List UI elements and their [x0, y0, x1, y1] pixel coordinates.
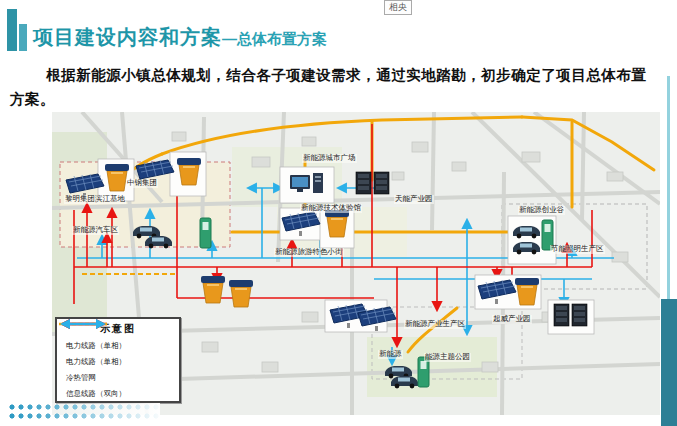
title-accent-bar-2 [19, 24, 27, 51]
map-label-industry-zone: 新能源产业生产区 [404, 320, 466, 329]
legend-item-heat-pipe: 冷热管网 [61, 370, 175, 386]
server-icon [374, 172, 389, 194]
charging-pillar-icon [200, 218, 211, 248]
legend-label: 电力线路（单相） [66, 357, 126, 367]
map-label-tourism-street: 新能源旅游特色小街 [274, 248, 344, 257]
legend-item-info-double: 信息线路（双向） [61, 386, 175, 402]
map-label-new-energy: 新能源 [378, 350, 403, 359]
legend-label: 冷热管网 [66, 373, 96, 383]
map-label-theme-park: 能源主题公园 [424, 353, 471, 362]
map-label-chaowei-park: 超威产业园 [492, 315, 532, 324]
page-title-sub: —总体布置方案 [222, 30, 327, 49]
title-accent-bar-1 [7, 9, 17, 51]
map-legend: 示意图 电力线路（单相） 电力线路（单相） 冷热管网 [55, 317, 181, 403]
legend-item-power-single: 电力线路（单相） [61, 338, 175, 354]
server-icon [356, 172, 371, 194]
server-icon [554, 304, 569, 326]
legend-label: 电力线路（单相） [66, 341, 126, 351]
site-map: 黎明集团滨江基地 中钢集团 新能源汽车区 新能源城市广场 新能源技术体验馆 天能… [52, 112, 660, 415]
map-label-lighting-zone: 节能照明生产区 [550, 245, 605, 254]
page-title-main: 项目建设内容和方案 [33, 24, 222, 51]
server-icon [572, 304, 587, 326]
page-title: 项目建设内容和方案 —总体布置方案 [33, 24, 327, 51]
dots-decoration [8, 403, 160, 420]
note-chip: 相央 [384, 0, 412, 15]
legend-label: 信息线路（双向） [66, 389, 126, 399]
map-label-tianneng-park: 天能产业园 [394, 195, 434, 204]
map-label-zhonggang-group: 中钢集团 [126, 179, 158, 188]
right-accent-bar [661, 299, 677, 426]
map-label-ev-zone: 新能源汽车区 [72, 226, 119, 235]
map-label-liming-base: 黎明集团滨江基地 [64, 195, 126, 204]
legend-item-power-double: 电力线路（单相） [61, 354, 175, 370]
body-paragraph: 根据新能源小镇总体规划，结合各子项建设需求，通过实地踏勘，初步确定了项目总体布置… [10, 64, 660, 112]
map-label-tech-hall: 新能源技术体验馆 [300, 204, 362, 213]
double-arrow-blue-icon [57, 319, 109, 329]
map-label-city-plaza: 新能源城市广场 [302, 154, 357, 163]
right-accent-line [667, 76, 670, 299]
map-label-startup-valley: 新能源创业谷 [518, 206, 565, 215]
